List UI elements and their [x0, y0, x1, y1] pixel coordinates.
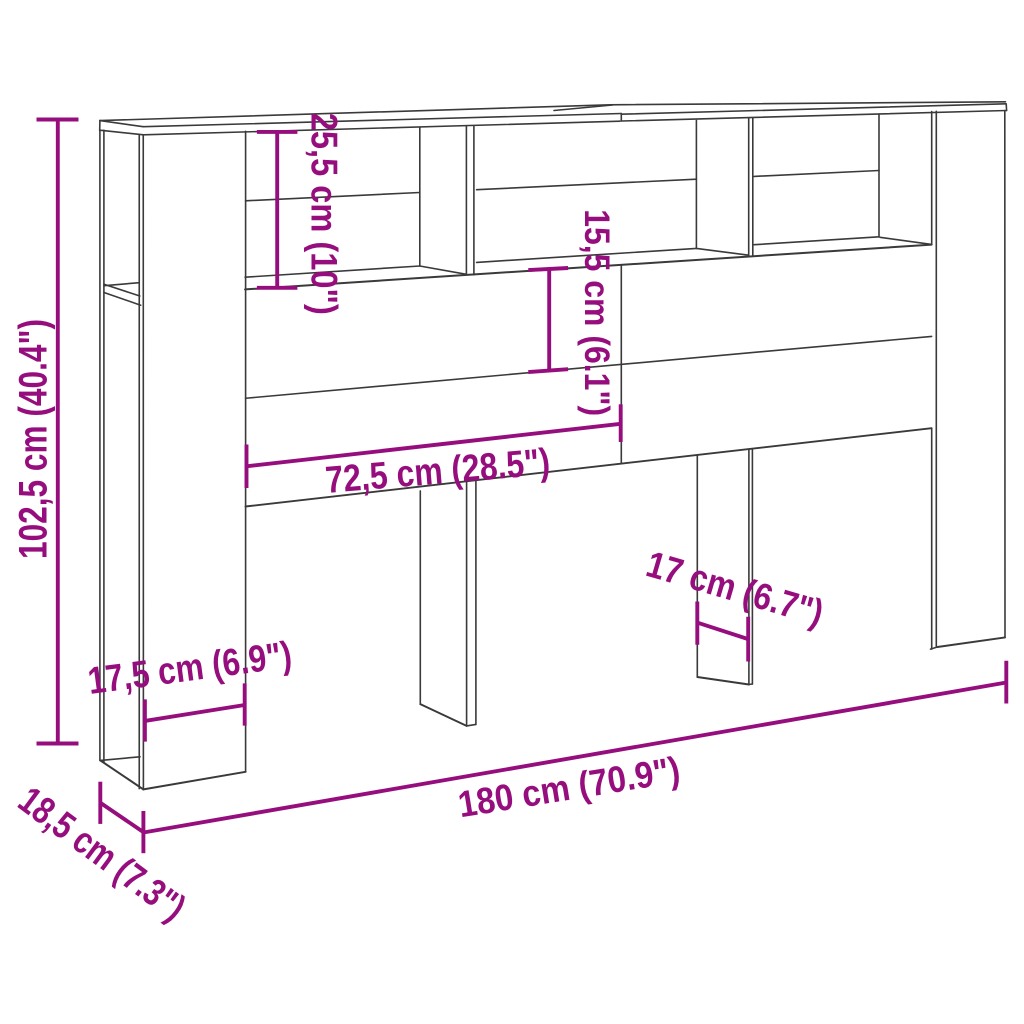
svg-text:25,5 cm (10"): 25,5 cm (10"): [304, 113, 345, 315]
svg-text:15,5 cm (6.1"): 15,5 cm (6.1"): [577, 209, 616, 416]
svg-text:102,5 cm (40.4"): 102,5 cm (40.4"): [11, 319, 55, 559]
